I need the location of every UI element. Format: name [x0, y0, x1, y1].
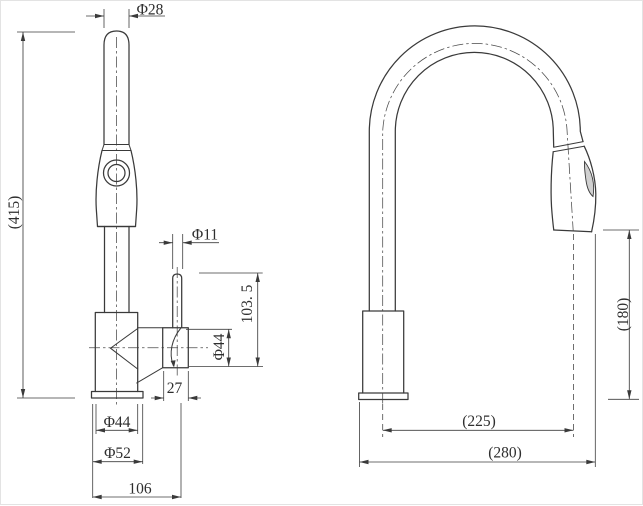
- technical-drawing-canvas: Φ28 (415) Φ11 103. 5: [0, 0, 643, 505]
- dim-106-arrow-right: [172, 495, 181, 499]
- dim-label-180: (180): [615, 298, 632, 332]
- dim-spout-reach: (225): [383, 234, 574, 437]
- dim-phi52-arrow-right: [134, 460, 143, 464]
- dim-label-106: 106: [128, 481, 152, 498]
- faucet-drawing-svg: Φ28 (415) Φ11 103. 5: [1, 1, 643, 506]
- dim-base-body-diameter: Φ44: [96, 404, 138, 434]
- dim-phi52-arrow-left: [93, 460, 102, 464]
- dim-phi11-arrow-right: [183, 241, 192, 245]
- dim-label-225: (225): [462, 413, 496, 430]
- valve-curve-arrowhead: [171, 360, 176, 367]
- front-centerlines: [89, 37, 208, 405]
- dim-label-280: (280): [488, 445, 522, 462]
- spray-head-bottom-edge-side: [554, 230, 592, 232]
- spray-wand-outline: [104, 31, 129, 145]
- gooseneck-inner-edge: [395, 52, 553, 311]
- dim-225-arrow-right: [565, 428, 574, 432]
- dim-280-arrow-right: [586, 460, 595, 464]
- dim-label-415: (415): [6, 196, 23, 230]
- dim-label-phi44-valve: Φ44: [211, 333, 228, 360]
- spray-head-side: [551, 142, 596, 232]
- dim-phi28-arrow-left: [95, 14, 104, 18]
- dim-phi11-arrow-left: [164, 241, 173, 245]
- dim-106-arrow-left: [93, 495, 102, 499]
- dim-label-103-5: 103. 5: [239, 284, 256, 323]
- dim-415-arrow-top: [21, 32, 25, 41]
- dim-27-arrow-left: [155, 396, 164, 400]
- dim-valve-body-width: 27: [151, 371, 201, 401]
- dim-27-arrow-right: [188, 396, 197, 400]
- dim-103-5-arrow-bottom: [256, 358, 260, 367]
- dim-phi28-extension-lines: [104, 9, 129, 28]
- tee-cone-lines: [111, 329, 138, 370]
- dim-label-phi44-base: Φ44: [104, 414, 131, 431]
- side-view: (225) (280) (180): [359, 26, 639, 467]
- valve-interior-curve: [171, 329, 180, 366]
- side-centerline: [383, 43, 574, 403]
- dim-415-extension-lines: [17, 32, 75, 398]
- dim-280-arrow-left: [360, 460, 369, 464]
- base-flange-front: [92, 392, 144, 399]
- dim-225-extension-lines: [383, 234, 574, 437]
- base-flange-side: [359, 393, 408, 400]
- dim-103-5-arrow-top: [256, 273, 260, 282]
- dim-label-27: 27: [167, 380, 183, 397]
- dim-label-phi11: Φ11: [192, 227, 218, 244]
- dim-phi11-extension-lines: [173, 234, 183, 269]
- dim-spray-wand-diameter: Φ28: [86, 2, 165, 29]
- faucet-base-side: [359, 311, 408, 400]
- spray-head-collar-side: [553, 142, 584, 152]
- front-view: Φ28 (415) Φ11 103. 5: [6, 2, 263, 500]
- dim-total-height: (415): [6, 32, 75, 398]
- dim-180-arrow-top: [627, 230, 631, 239]
- gooseneck-spout: [369, 26, 583, 311]
- dim-label-phi52: Φ52: [104, 445, 131, 462]
- dim-label-phi28: Φ28: [137, 2, 164, 19]
- dim-415-arrow-bottom: [21, 389, 25, 398]
- spray-head-left-edge: [551, 152, 554, 230]
- base-body-side: [363, 311, 404, 393]
- dim-spout-clearance: (180): [603, 230, 639, 399]
- dim-225-arrow-left: [383, 428, 392, 432]
- dim-lever-diameter: Φ11: [159, 227, 219, 270]
- gooseneck-outer-edge: [369, 26, 583, 311]
- valve-lower-diagonal: [137, 368, 163, 383]
- dim-180-arrow-bottom: [627, 390, 631, 399]
